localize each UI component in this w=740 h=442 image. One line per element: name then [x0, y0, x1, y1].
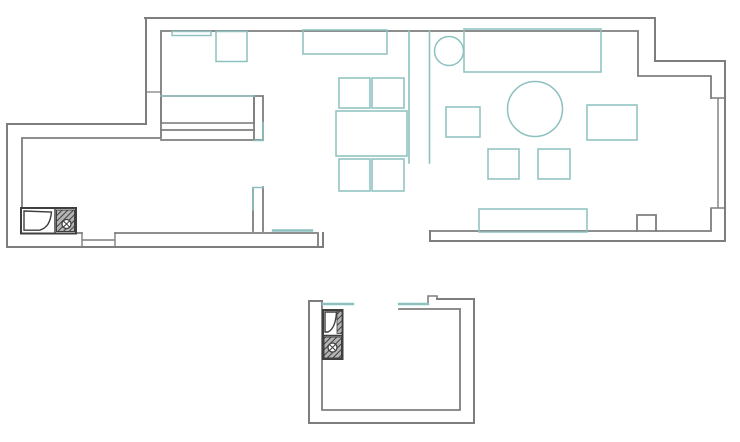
- background: [0, 0, 740, 442]
- floor-plan-svg: [0, 0, 740, 442]
- floor-plan: [0, 0, 740, 442]
- bath-strip-hatch: [337, 312, 342, 334]
